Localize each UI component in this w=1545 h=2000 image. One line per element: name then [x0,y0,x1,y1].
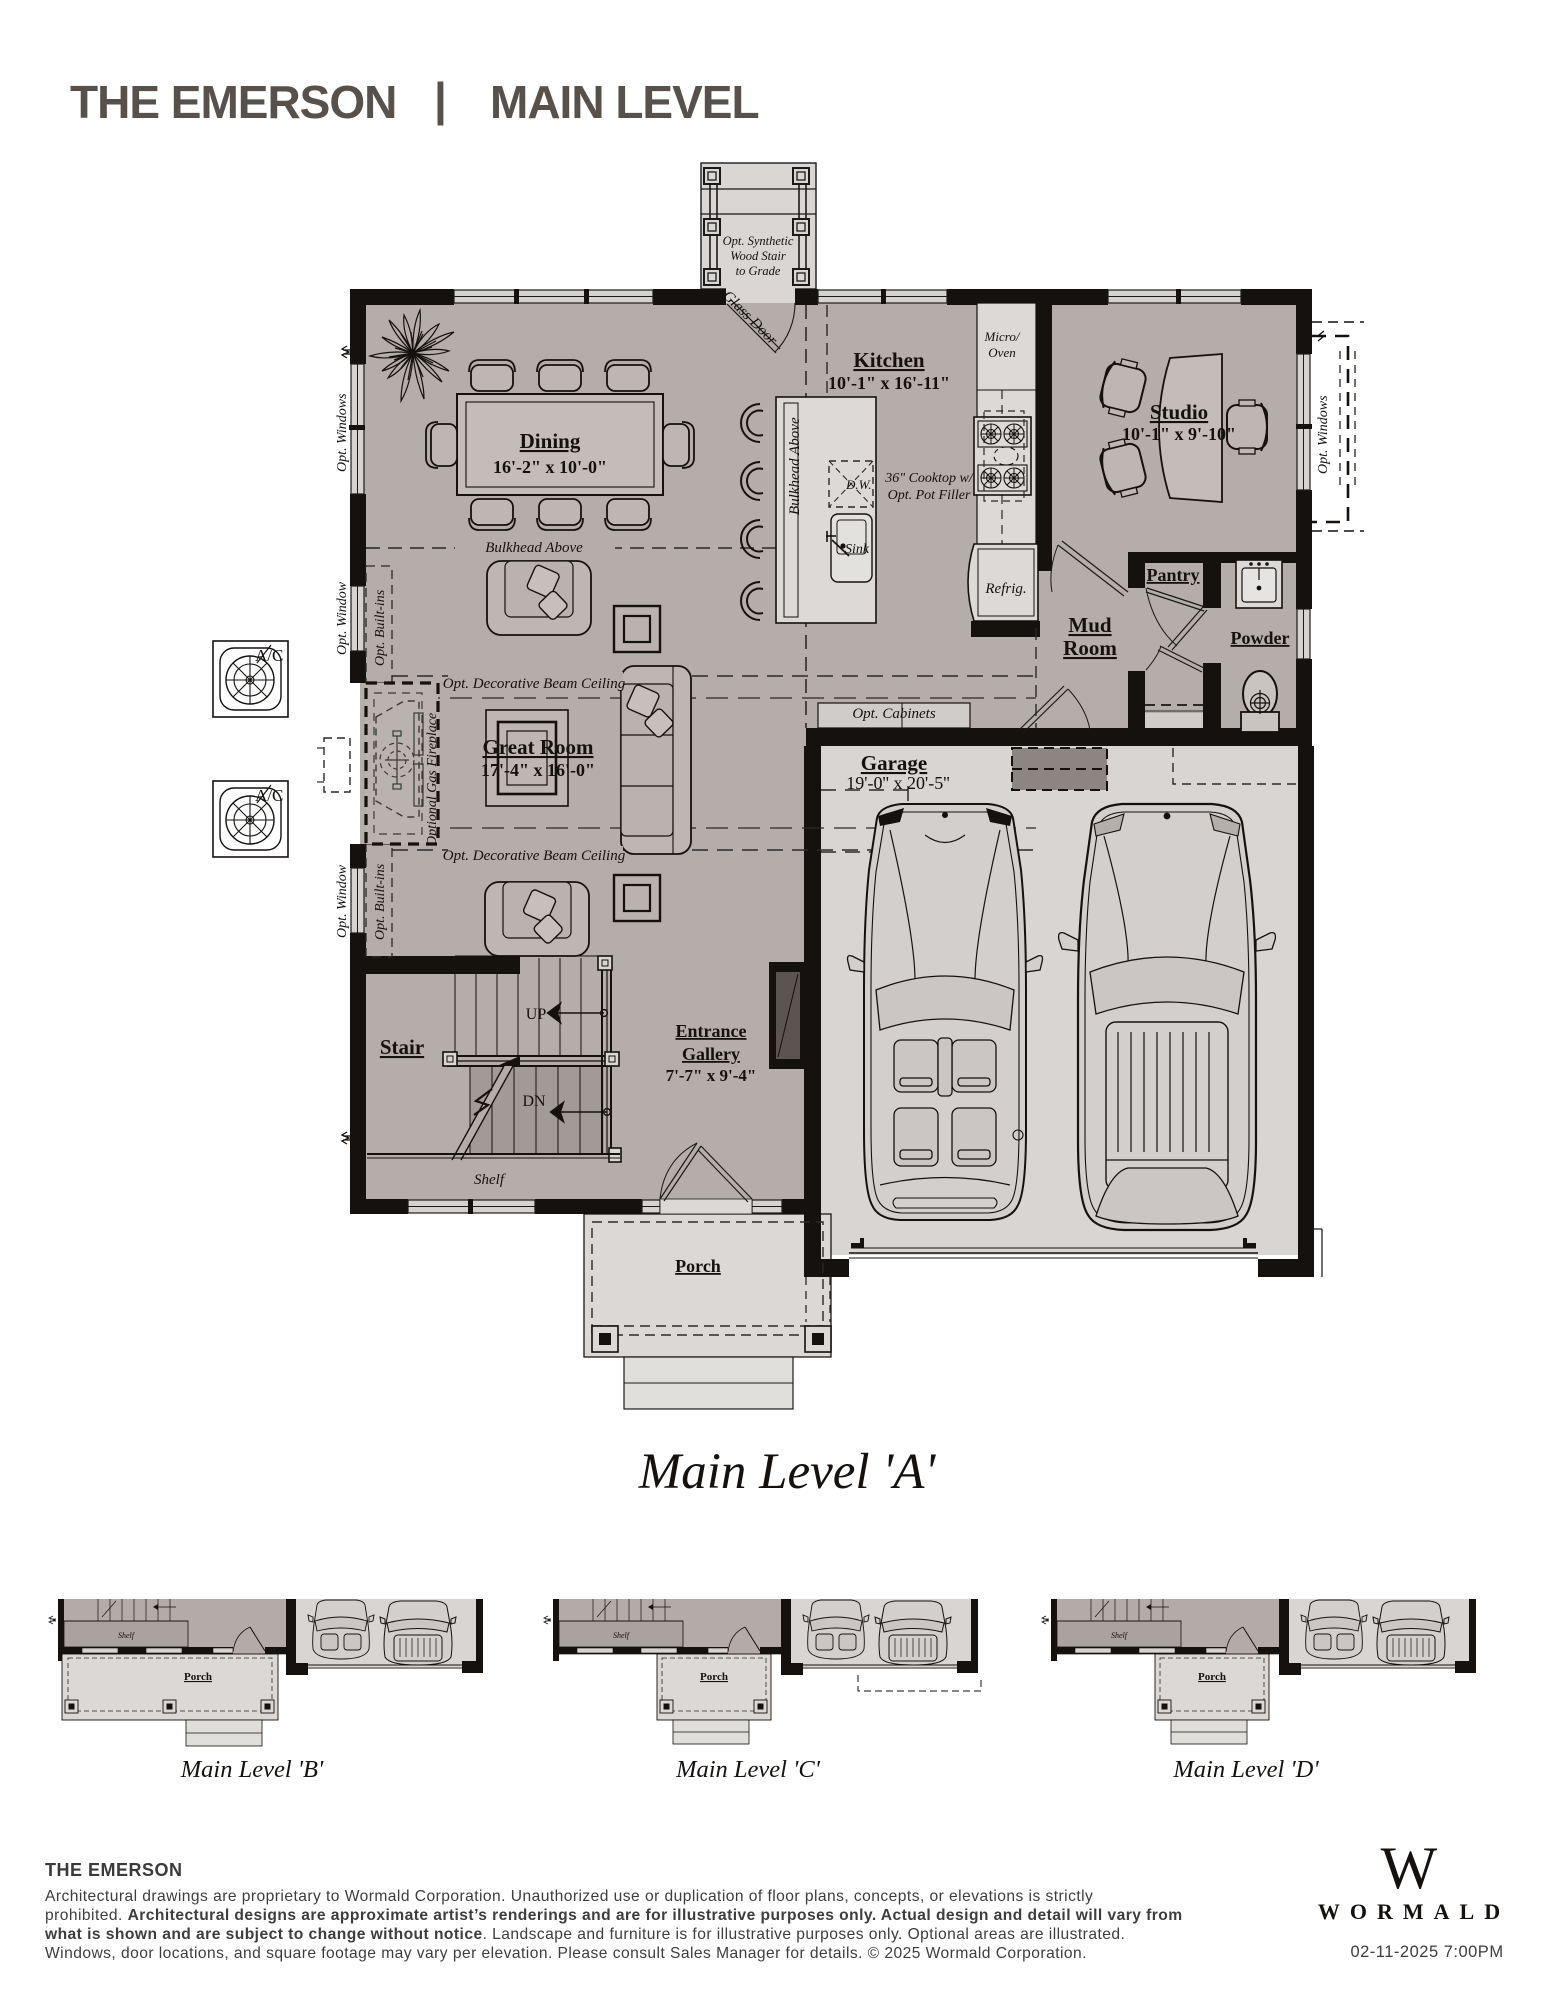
svg-text:Great Room: Great Room [483,735,595,759]
svg-text:Opt. Decorative Beam Ceiling: Opt. Decorative Beam Ceiling [443,676,626,692]
svg-text:Refrig.: Refrig. [984,581,1026,597]
svg-text:Wood Stair: Wood Stair [730,249,786,263]
svg-text:Mud: Mud [1068,613,1112,637]
svg-text:36" Cooktop w/: 36" Cooktop w/ [884,471,974,486]
svg-text:MAIN LEVEL: MAIN LEVEL [490,76,759,128]
svg-text:Optional Gas Fireplace: Optional Gas Fireplace [425,713,440,846]
svg-text:Gallery: Gallery [682,1044,740,1064]
svg-text:Bulkhead Above: Bulkhead Above [485,540,583,556]
svg-text:Opt. Pot Filler: Opt. Pot Filler [888,488,971,503]
svg-text:Bulkhead Above: Bulkhead Above [787,417,803,515]
svg-text:Powder: Powder [1231,628,1290,648]
svg-text:Stair: Stair [380,1035,424,1059]
svg-text:prohibited. Architectural desi: prohibited. Architectural designs are ap… [45,1907,1183,1924]
svg-text:Kitchen: Kitchen [853,348,924,372]
svg-text:Porch: Porch [184,1671,212,1683]
svg-text:Windows, door locations, and s: Windows, door locations, and square foot… [45,1945,1087,1962]
svg-text:10'-1" x 9'-10": 10'-1" x 9'-10" [1122,424,1236,444]
svg-text:Opt. Windows: Opt. Windows [335,393,350,472]
svg-text:Pantry: Pantry [1147,565,1200,585]
svg-text:THE EMERSON: THE EMERSON [45,1860,183,1880]
svg-text:Opt. Built-ins: Opt. Built-ins [373,589,388,666]
svg-text:Main Level 'B': Main Level 'B' [180,1756,324,1783]
svg-text:A/C: A/C [255,646,283,665]
svg-text:THE EMERSON: THE EMERSON [70,76,396,128]
svg-text:what is shown and are subject: what is shown and are subject to change … [44,1926,1125,1943]
svg-text:10'-1" x 16'-11": 10'-1" x 16'-11" [828,373,950,393]
svg-text:Main Level 'C': Main Level 'C' [675,1756,821,1783]
svg-text:WORMALD: WORMALD [1318,1899,1510,1924]
svg-text:Room: Room [1063,636,1117,660]
svg-text:Opt. Cabinets: Opt. Cabinets [852,706,935,722]
svg-text:|: | [434,73,446,125]
svg-text:Main Level 'D': Main Level 'D' [1172,1756,1319,1783]
svg-text:Opt. Windows: Opt. Windows [1316,395,1331,474]
svg-text:17'-4" x 16'-0": 17'-4" x 16'-0" [481,760,595,780]
svg-text:Micro/: Micro/ [984,329,1021,344]
svg-text:Studio: Studio [1150,400,1208,424]
svg-text:Opt. Window: Opt. Window [335,581,350,655]
svg-text:Garage: Garage [861,751,927,775]
svg-text:Main Level 'A': Main Level 'A' [638,1444,937,1500]
svg-text:A/C: A/C [255,786,283,805]
svg-text:02-11-2025 7:00PM: 02-11-2025 7:00PM [1350,1943,1503,1961]
svg-text:Dining: Dining [520,429,581,453]
svg-text:19'-0'' x 20'-5'': 19'-0'' x 20'-5'' [846,773,949,793]
svg-text:Opt. Decorative Beam Ceiling: Opt. Decorative Beam Ceiling [443,848,626,864]
svg-text:DN: DN [522,1093,546,1110]
svg-text:Oven: Oven [988,345,1015,360]
svg-text:16'-2" x 10'-0": 16'-2" x 10'-0" [493,457,607,477]
svg-text:7'-7" x 9'-4": 7'-7" x 9'-4" [666,1066,757,1085]
svg-text:Shelf: Shelf [474,1172,506,1188]
svg-text:to Grade: to Grade [736,264,781,278]
svg-text:Entrance: Entrance [676,1021,747,1041]
svg-text:D.W.: D.W. [845,477,872,492]
svg-text:Sink: Sink [845,542,870,557]
svg-text:Architectural drawings are pro: Architectural drawings are proprietary t… [45,1888,1093,1905]
svg-text:Opt. Synthetic: Opt. Synthetic [723,234,794,248]
svg-text:W: W [1381,1835,1438,1901]
svg-text:Porch: Porch [675,1256,721,1276]
svg-text:Opt. Window: Opt. Window [335,864,350,938]
svg-text:UP: UP [526,1006,547,1023]
svg-text:Opt. Built-ins: Opt. Built-ins [373,863,388,940]
